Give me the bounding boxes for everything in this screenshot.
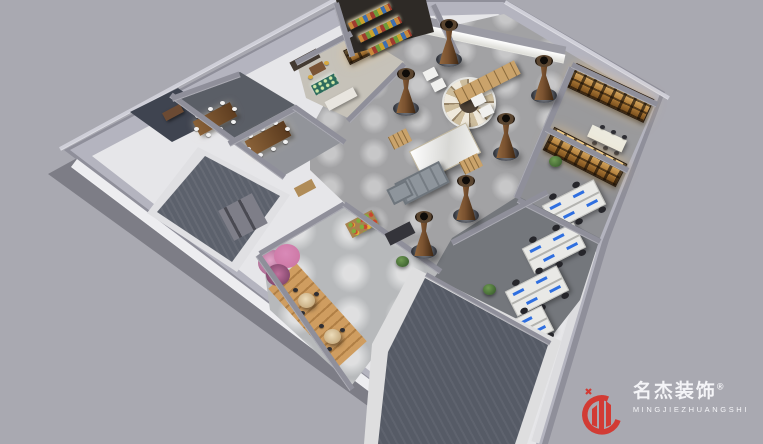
vase-column — [436, 19, 462, 67]
chair — [622, 135, 627, 139]
chair — [232, 107, 237, 111]
chair — [194, 127, 199, 131]
chair — [611, 130, 616, 134]
chair — [340, 328, 345, 332]
chair — [319, 324, 324, 328]
render-canvas: 名杰装饰® MINGJIEZHUANGSHI — [0, 0, 763, 444]
chair — [600, 125, 605, 129]
vase-column — [411, 211, 437, 259]
chair — [314, 292, 319, 296]
chair — [293, 288, 298, 292]
vase-column — [393, 68, 419, 116]
registered-mark: ® — [717, 382, 726, 392]
cafe-plant-icon — [396, 256, 409, 267]
chair — [220, 101, 225, 105]
chair — [285, 127, 290, 131]
chair — [603, 146, 608, 150]
office-plant-icon — [483, 284, 496, 295]
chair — [206, 133, 211, 137]
chair — [308, 75, 313, 79]
vase-column — [493, 113, 519, 161]
chair — [231, 120, 236, 124]
vase-column — [453, 175, 479, 223]
brand-watermark: 名杰装饰® MINGJIEZHUANGSHI — [579, 382, 749, 438]
cafe-round-table — [324, 329, 341, 344]
chair — [208, 107, 213, 111]
vase-column — [531, 55, 557, 103]
brand-logo-icon — [579, 382, 627, 438]
chair — [271, 147, 276, 151]
chair — [592, 141, 597, 145]
chair — [614, 151, 619, 155]
brand-name-en: MINGJIEZHUANGSHI — [633, 405, 749, 414]
chair — [324, 61, 329, 65]
brand-name-cn: 名杰装饰® — [633, 382, 749, 403]
cafe-round-table — [298, 293, 315, 308]
office-plant-icon — [549, 156, 562, 167]
chair — [283, 140, 288, 144]
